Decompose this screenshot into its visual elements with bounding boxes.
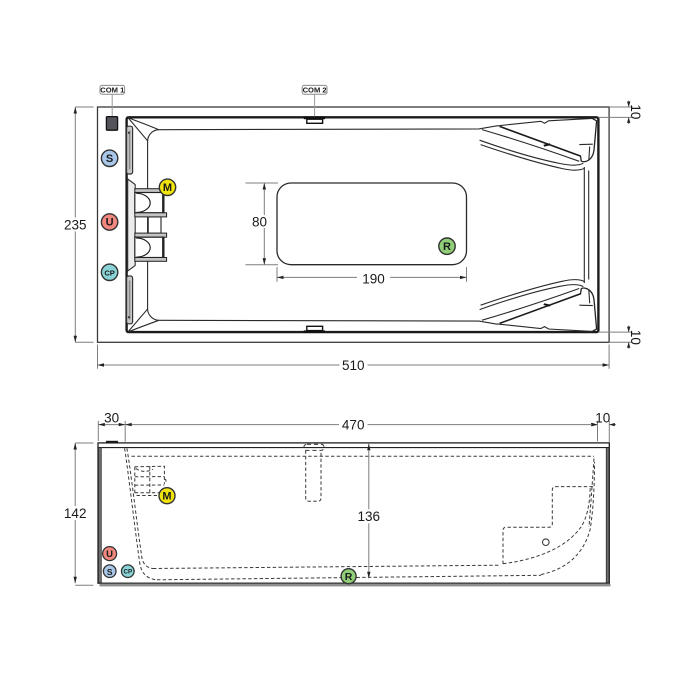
svg-text:80: 80 [252, 214, 267, 229]
svg-text:142: 142 [64, 506, 87, 521]
svg-text:U: U [106, 549, 113, 560]
svg-text:R: R [345, 571, 353, 583]
svg-text:470: 470 [342, 418, 365, 433]
svg-text:10: 10 [628, 104, 643, 119]
svg-text:U: U [106, 217, 114, 229]
svg-text:S: S [106, 153, 113, 165]
svg-text:M: M [162, 490, 171, 502]
svg-text:510: 510 [342, 358, 365, 373]
svg-text:CP: CP [123, 568, 132, 575]
svg-text:10: 10 [595, 410, 610, 425]
svg-text:R: R [443, 241, 451, 253]
svg-text:CP: CP [104, 269, 115, 278]
svg-text:190: 190 [362, 271, 385, 286]
svg-text:S: S [107, 567, 113, 577]
svg-text:136: 136 [358, 509, 381, 524]
svg-text:M: M [163, 182, 172, 194]
svg-text:235: 235 [64, 217, 87, 232]
svg-text:COM 2: COM 2 [303, 86, 327, 95]
svg-text:30: 30 [104, 410, 119, 425]
svg-text:COM 1: COM 1 [100, 86, 125, 95]
svg-text:10: 10 [628, 330, 643, 345]
